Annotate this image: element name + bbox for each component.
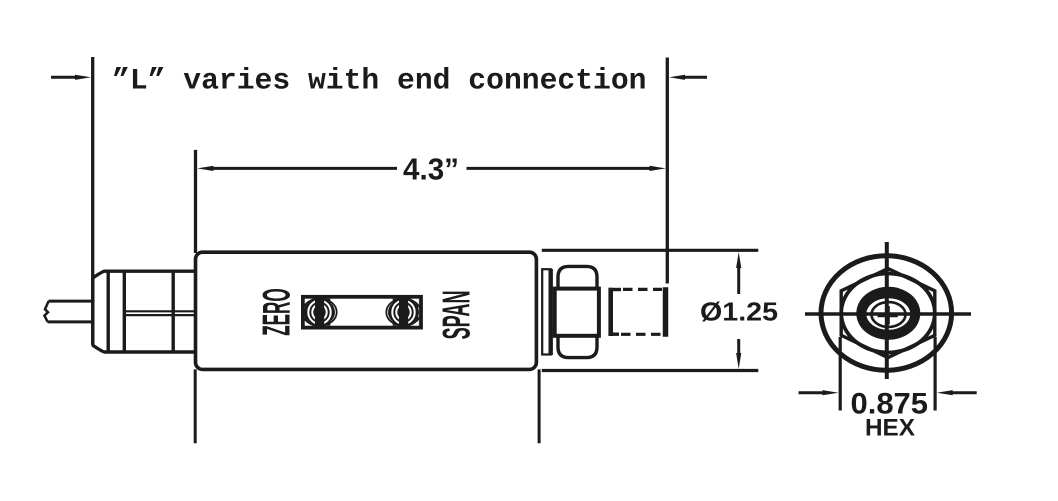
svg-text:”L” varies with end connection: ”L” varies with end connection <box>112 64 646 98</box>
svg-text:4.3”: 4.3” <box>403 153 459 187</box>
svg-text:Ø1.25: Ø1.25 <box>700 297 778 327</box>
svg-text:HEX: HEX <box>865 415 915 442</box>
svg-text:SPAN: SPAN <box>436 290 479 339</box>
svg-text:ZERO: ZERO <box>255 288 298 336</box>
